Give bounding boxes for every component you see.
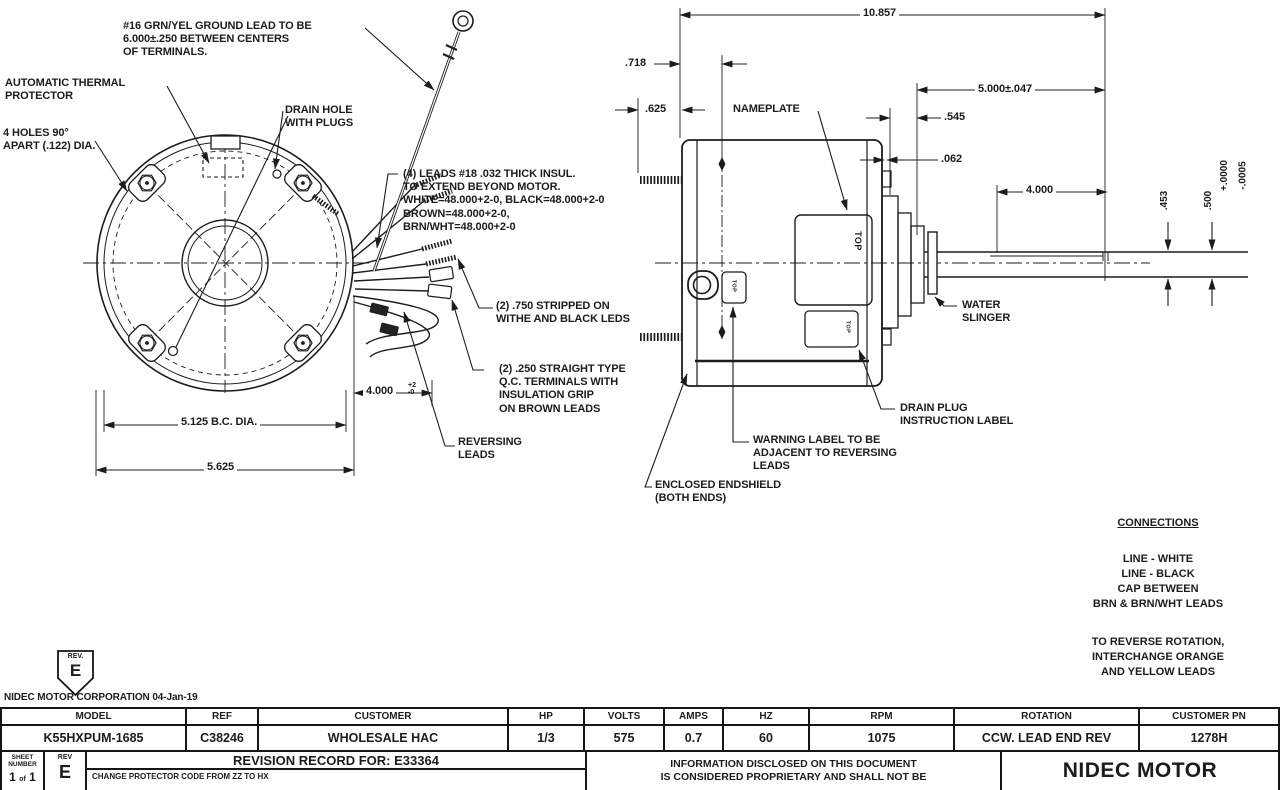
dim-10857: 10.857 <box>860 7 899 19</box>
value-hp: 1/3 <box>507 724 585 752</box>
qc-terminals-note: (2) .250 STRAIGHT TYPE Q.C. TERMINALS WI… <box>499 363 626 416</box>
nameplate-outline <box>795 215 872 305</box>
nameplate-top-text: TOP <box>853 231 863 251</box>
top-tab <box>211 136 240 149</box>
warning-label-note: WARNING LABEL TO BE ADJACENT TO REVERSIN… <box>753 434 897 474</box>
drain-top-text: TOP <box>844 321 850 334</box>
motor-front-view <box>83 11 493 476</box>
value-amps: 0.7 <box>663 724 724 752</box>
dim-453: .453 <box>1159 191 1170 210</box>
drain-hole-top <box>273 170 281 178</box>
rev-badge-label: REV. <box>59 653 92 660</box>
value-ref: C38246 <box>185 724 259 752</box>
value-model: K55HXPUM-1685 <box>0 724 187 752</box>
value-customer-pn: 1278H <box>1138 724 1280 752</box>
reversing-plug-2 <box>380 323 399 336</box>
value-volts: 575 <box>583 724 665 752</box>
water-slinger-note: WATER SLINGER <box>962 299 1010 325</box>
value-rpm: 1075 <box>808 724 955 752</box>
rev-cell-label: REV <box>58 754 72 762</box>
dim-tol-plus: +.0000 <box>1219 160 1230 191</box>
dim-tol-minus: -.0005 <box>1238 161 1249 189</box>
drain-hole-bottom <box>169 347 178 356</box>
rev-cell: REV E <box>43 750 87 790</box>
dim-545: .545 <box>944 111 965 124</box>
proprietary-notice: INFORMATION DISCLOSED ON THIS DOCUMENT I… <box>585 750 1002 790</box>
connections-lines: LINE - WHITE LINE - BLACK CAP BETWEEN BR… <box>1048 552 1268 612</box>
brand-title: NIDEC MOTOR <box>1000 750 1280 790</box>
value-customer: WHOLESALE HAC <box>257 724 509 752</box>
revision-record-banner: REVISION RECORD FOR: E33364 <box>85 750 587 770</box>
side-leaders <box>645 111 957 487</box>
qc-terminal-2 <box>428 284 452 299</box>
dim-5000: 5.000±.047 <box>975 83 1035 95</box>
dim-bc-dia: 5.125 B.C. DIA. <box>178 416 260 428</box>
drain-hole-note: DRAIN HOLE WITH PLUGS <box>285 104 353 130</box>
front-leaders <box>95 28 493 446</box>
thermal-protector-outline <box>203 158 243 177</box>
mount-holes-note: 4 HOLES 90° APART (.122) DIA. <box>3 127 95 153</box>
ring-terminal <box>453 11 473 31</box>
dim-lead-tolerance: +2 -0 <box>408 383 416 396</box>
stripped-leads-note: (2) .750 STRIPPED ON WITHE AND BLACK LED… <box>496 300 630 326</box>
water-slinger-disc <box>928 232 937 294</box>
dim-625: .625 <box>645 103 666 116</box>
rev-badge-value: E <box>59 661 92 681</box>
drain-plug-note: DRAIN PLUG INSTRUCTION LABEL <box>900 402 1013 428</box>
engineering-drawing-sheet: #16 GRN/YEL GROUND LEAD TO BE 6.000±.250… <box>0 0 1280 790</box>
nameplate-note: NAMEPLATE <box>733 103 800 116</box>
connections-reverse-note: TO REVERSE ROTATION, INTERCHANGE ORANGE … <box>1048 635 1268 680</box>
sheet-number-cell: SHEET NUMBER 1 of 1 <box>0 750 45 790</box>
reversing-plug-1 <box>370 303 389 316</box>
qc-terminal-1 <box>429 266 454 281</box>
change-note: CHANGE PROTECTOR CODE FROM ZZ TO HX <box>85 768 587 790</box>
dim-500: .500 <box>1203 191 1214 210</box>
company-line: NIDEC MOTOR CORPORATION 04-Jan-19 <box>4 692 198 703</box>
leads-spec-note: (4) LEADS #18 .032 THICK INSUL. TO EXTEN… <box>403 168 604 234</box>
reversing-leads-note: REVERSING LEADS <box>458 436 522 462</box>
rev-cell-value: E <box>59 763 71 783</box>
side-dimensions <box>615 15 1212 306</box>
dim-od: 5.625 <box>204 461 237 473</box>
value-hz: 60 <box>722 724 810 752</box>
dim-062: .062 <box>941 153 962 166</box>
connections-title: CONNECTIONS <box>1048 516 1268 531</box>
ground-lead-note: #16 GRN/YEL GROUND LEAD TO BE 6.000±.250… <box>123 20 312 60</box>
connections-block: CONNECTIONS LINE - WHITE LINE - BLACK CA… <box>1048 501 1268 695</box>
sheet-number-label: SHEET NUMBER <box>8 754 37 768</box>
endshield-note: ENCLOSED ENDSHIELD (BOTH ENDS) <box>655 479 781 505</box>
dim-718: .718 <box>625 57 646 70</box>
thermal-protector-note: AUTOMATIC THERMAL PROTECTOR <box>5 77 125 103</box>
dim-lead-length: 4.000 <box>363 385 396 397</box>
ground-eyelet <box>688 271 718 299</box>
front-dimensions <box>96 393 432 470</box>
warning-top-text: TOP <box>730 280 736 293</box>
dim-4000: 4.000 <box>1023 184 1056 196</box>
sheet-number-value: 1 of 1 <box>9 771 36 784</box>
value-rotation: CCW. LEAD END REV <box>953 724 1140 752</box>
